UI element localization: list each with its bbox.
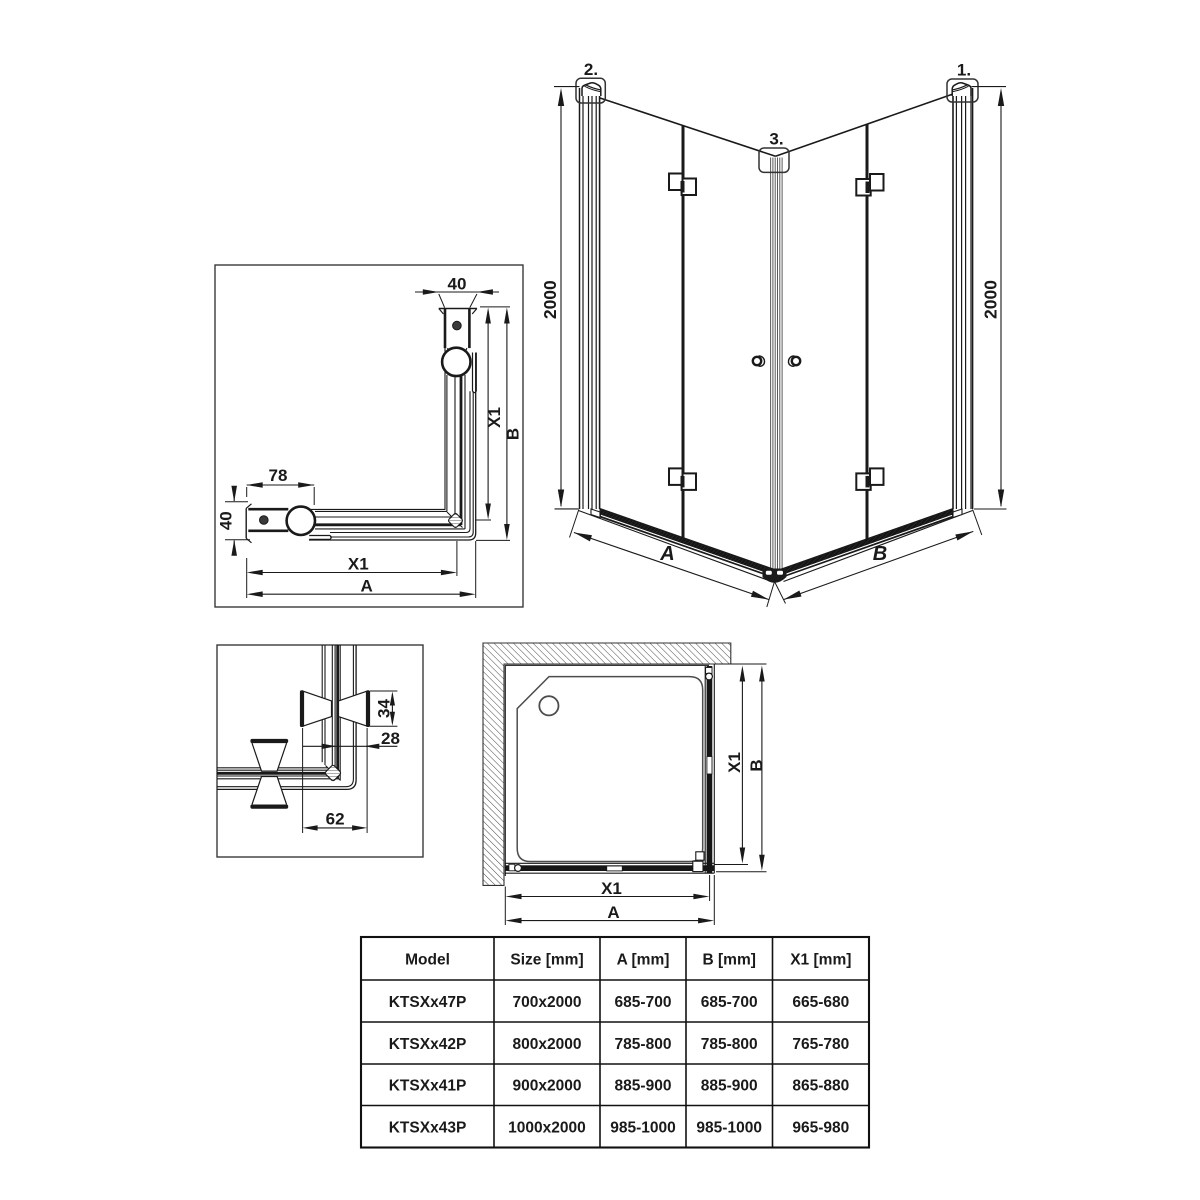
svg-text:2000: 2000 [980,280,1000,319]
svg-text:665-680: 665-680 [792,994,849,1011]
svg-text:Size [mm]: Size [mm] [510,951,583,968]
svg-text:KTSXx41P: KTSXx41P [389,1077,467,1094]
svg-text:700x2000: 700x2000 [512,994,581,1011]
svg-text:62: 62 [326,809,345,828]
svg-text:28: 28 [381,729,400,748]
svg-text:965-980: 965-980 [792,1119,849,1136]
svg-text:2000: 2000 [540,280,560,319]
svg-text:B: B [873,543,887,565]
svg-text:X1: X1 [348,555,369,574]
svg-text:800x2000: 800x2000 [512,1036,581,1053]
svg-text:1000x2000: 1000x2000 [508,1119,586,1136]
svg-text:KTSXx43P: KTSXx43P [389,1119,467,1136]
svg-text:985-1000: 985-1000 [696,1119,762,1136]
svg-text:X1: X1 [725,752,744,773]
svg-text:A [mm]: A [mm] [617,951,670,968]
svg-text:2.: 2. [584,60,598,79]
svg-text:B: B [747,759,766,771]
svg-text:685-700: 685-700 [701,994,758,1011]
svg-text:785-800: 785-800 [701,1036,758,1053]
svg-text:40: 40 [217,511,236,530]
svg-text:985-1000: 985-1000 [610,1119,676,1136]
svg-text:B [mm]: B [mm] [702,951,755,968]
svg-text:B: B [504,428,523,440]
svg-text:34: 34 [375,699,394,718]
svg-text:3.: 3. [769,130,783,149]
svg-text:885-900: 885-900 [701,1077,758,1094]
svg-text:X1 [mm]: X1 [mm] [790,951,851,968]
svg-text:685-700: 685-700 [615,994,672,1011]
svg-text:A: A [361,577,373,596]
svg-text:78: 78 [269,466,288,485]
svg-text:A: A [607,903,619,922]
svg-text:900x2000: 900x2000 [512,1077,581,1094]
svg-text:X1: X1 [601,879,622,898]
svg-text:X1: X1 [485,407,504,428]
svg-text:1.: 1. [957,61,971,80]
svg-text:765-780: 765-780 [792,1036,849,1053]
svg-text:KTSXx47P: KTSXx47P [389,994,467,1011]
svg-text:Model: Model [405,951,450,968]
svg-text:865-880: 865-880 [792,1077,849,1094]
svg-text:A: A [659,543,674,565]
svg-text:40: 40 [448,275,467,294]
svg-text:KTSXx42P: KTSXx42P [389,1036,467,1053]
svg-text:785-800: 785-800 [615,1036,672,1053]
svg-text:885-900: 885-900 [615,1077,672,1094]
